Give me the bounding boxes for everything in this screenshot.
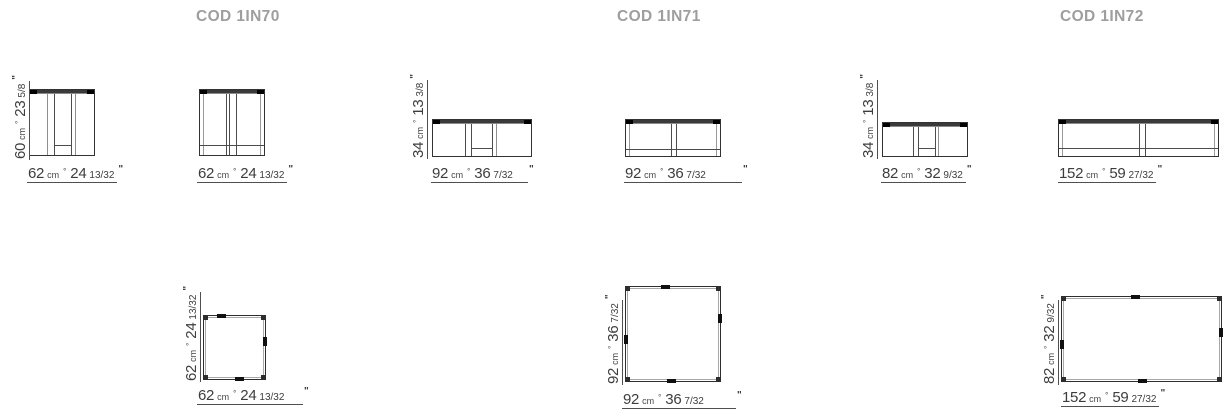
side-view-1in70 bbox=[199, 89, 265, 156]
dimension-cm: 92 bbox=[623, 391, 639, 408]
dimension-cm: 34 bbox=[410, 142, 427, 158]
joint-tick bbox=[1138, 379, 1147, 383]
leg-line bbox=[1145, 124, 1146, 156]
leg-line bbox=[496, 124, 497, 156]
corner-joint bbox=[1217, 377, 1222, 382]
frame-line bbox=[629, 124, 630, 156]
corner-joint bbox=[1061, 377, 1066, 382]
inch-mark: " bbox=[288, 164, 293, 175]
dimension-inches: 24 bbox=[240, 387, 256, 404]
dimension-inches: 32 bbox=[924, 165, 940, 182]
inch-mark: " bbox=[1040, 294, 1051, 299]
dimension-fraction: 5/8 bbox=[17, 84, 28, 98]
dimension-cm: 82 bbox=[1041, 368, 1058, 384]
dimension-unit: cm bbox=[1086, 170, 1098, 180]
stretcher-line bbox=[918, 148, 935, 149]
dimension-separator: ° bbox=[917, 167, 920, 176]
stretcher-line bbox=[1059, 148, 1218, 149]
dimension-unit: cm bbox=[610, 353, 620, 365]
leg-line bbox=[75, 94, 76, 155]
dimension-cm: 62 bbox=[198, 387, 214, 404]
inch-mark: " bbox=[182, 286, 193, 291]
dimension-separator: ° bbox=[1043, 346, 1052, 349]
dimension-separator: ° bbox=[412, 120, 421, 123]
plan-view-1in71 bbox=[625, 286, 721, 382]
tabletop-edge bbox=[200, 90, 264, 94]
depth-dimension-1in71-plan: 92cm°367/32" bbox=[601, 294, 619, 385]
dimension-cm: 62 bbox=[28, 165, 44, 182]
dimension-separator: ° bbox=[467, 167, 470, 176]
dimension-unit: cm bbox=[901, 170, 913, 180]
frame-line bbox=[1214, 124, 1215, 156]
height-dimension-1in70: 60cm°235/8" bbox=[8, 75, 26, 160]
corner-joint bbox=[716, 286, 721, 291]
width-dimension-1in70-plan: 62cm°2413/32" bbox=[197, 383, 309, 401]
dimension-fraction: 9/32 bbox=[943, 170, 962, 181]
stretcher-line bbox=[200, 145, 264, 146]
plan-view-1in70 bbox=[203, 315, 266, 380]
dimension-fraction: 3/8 bbox=[415, 83, 426, 97]
width-dimension-1in70-side: 62cm°2413/32" bbox=[197, 161, 293, 179]
tabletop-edge bbox=[433, 120, 531, 124]
joint-tick bbox=[667, 379, 676, 383]
leg-line bbox=[671, 124, 672, 156]
product-code-1in70: COD 1IN70 bbox=[196, 8, 280, 26]
dimension-inches: 24 bbox=[183, 323, 200, 339]
dimension-cm: 62 bbox=[198, 165, 214, 182]
corner-joint bbox=[203, 375, 208, 380]
dimension-separator: ° bbox=[14, 121, 23, 124]
dimension-fraction: 7/32 bbox=[493, 170, 512, 181]
dimension-separator: ° bbox=[233, 167, 236, 176]
dimension-separator: ° bbox=[63, 167, 66, 176]
dimension-unit: cm bbox=[17, 128, 27, 140]
dimension-cm: 60 bbox=[12, 143, 29, 159]
tabletop-end-cap bbox=[524, 120, 531, 124]
leg-line bbox=[913, 127, 914, 156]
width-dimension-1in72-front: 82cm°329/32" bbox=[881, 161, 972, 179]
front-view-1in71 bbox=[432, 119, 532, 157]
dimension-fraction: 27/32 bbox=[1128, 170, 1153, 181]
technical-drawing-sheet: COD 1IN70 COD 1IN71 COD 1IN72 60cm°235/8… bbox=[0, 0, 1226, 411]
leg-line bbox=[935, 127, 936, 156]
dimension-inches: 24 bbox=[240, 165, 256, 182]
dimension-fraction: 13/32 bbox=[188, 295, 199, 320]
corner-joint bbox=[203, 315, 208, 320]
dimension-separator: ° bbox=[1105, 391, 1108, 400]
dimension-cm: 82 bbox=[882, 165, 898, 182]
height-dimension-1in72: 34cm°133/8" bbox=[856, 74, 874, 159]
front-view-1in70 bbox=[29, 89, 95, 156]
dimension-unit: cm bbox=[644, 170, 656, 180]
joint-tick bbox=[263, 337, 267, 346]
dimension-fraction: 3/8 bbox=[865, 83, 876, 97]
dimension-unit: cm bbox=[865, 127, 875, 139]
inch-mark: " bbox=[1157, 164, 1162, 175]
product-code-1in72: COD 1IN72 bbox=[1060, 8, 1144, 26]
corner-joint bbox=[261, 375, 266, 380]
leg-line bbox=[918, 127, 919, 156]
inch-mark: " bbox=[859, 74, 870, 79]
dimension-cm: 92 bbox=[625, 165, 641, 182]
dimension-fraction: 13/32 bbox=[259, 170, 284, 181]
dimension-inches: 59 bbox=[1112, 389, 1128, 406]
corner-joint bbox=[625, 286, 630, 291]
front-view-1in72 bbox=[882, 122, 968, 157]
stretcher-line bbox=[626, 149, 720, 150]
inch-mark: " bbox=[11, 75, 22, 80]
leg-line bbox=[676, 124, 677, 156]
dimension-cm: 92 bbox=[432, 165, 448, 182]
dimension-separator: ° bbox=[862, 120, 871, 123]
dimension-fraction: 9/32 bbox=[1046, 303, 1057, 322]
tabletop-edge bbox=[626, 120, 720, 124]
dimension-inches: 13 bbox=[860, 100, 877, 116]
dimension-inches: 23 bbox=[12, 101, 29, 117]
dimension-inches: 36 bbox=[605, 326, 622, 342]
dimension-fraction: 7/32 bbox=[684, 396, 703, 407]
joint-tick bbox=[624, 335, 628, 344]
dimension-inches: 13 bbox=[410, 100, 427, 116]
corner-joint bbox=[1061, 296, 1066, 301]
leg-line bbox=[465, 124, 466, 156]
inch-mark: " bbox=[967, 164, 972, 175]
leg-line bbox=[492, 124, 493, 156]
dimension-cm: 62 bbox=[183, 365, 200, 381]
joint-tick bbox=[1219, 328, 1223, 337]
tabletop-inner-edge bbox=[1063, 298, 1220, 380]
tabletop-edge bbox=[883, 123, 967, 127]
joint-tick bbox=[718, 314, 722, 323]
width-dimension-1in71-side: 92cm°367/32" bbox=[624, 161, 748, 179]
stretcher-line bbox=[54, 145, 71, 146]
dimension-separator: ° bbox=[658, 393, 661, 402]
inch-mark: " bbox=[304, 386, 309, 397]
inch-mark: " bbox=[737, 390, 742, 401]
inch-mark: " bbox=[743, 164, 748, 175]
stretcher-line bbox=[471, 148, 492, 149]
depth-dimension-1in72-plan: 82cm°329/32" bbox=[1037, 294, 1055, 385]
width-dimension-1in71-plan: 92cm°367/32" bbox=[622, 387, 742, 405]
side-view-1in71 bbox=[625, 119, 721, 157]
width-dimension-1in71-front: 92cm°367/32" bbox=[431, 161, 534, 179]
tabletop-inner-edge bbox=[627, 288, 719, 380]
inch-mark: " bbox=[1160, 388, 1165, 399]
dimension-unit: cm bbox=[217, 170, 229, 180]
dimension-inches: 59 bbox=[1109, 165, 1125, 182]
leg-line bbox=[938, 127, 939, 156]
joint-tick bbox=[217, 314, 226, 318]
tabletop-end-cap bbox=[960, 123, 967, 127]
depth-dimension-1in70-plan: 62cm°2413/32" bbox=[179, 286, 197, 382]
dimension-unit: cm bbox=[451, 170, 463, 180]
dimension-fraction: 7/32 bbox=[686, 170, 705, 181]
dimension-fraction: 27/32 bbox=[1131, 394, 1156, 405]
width-dimension-1in72-side: 152cm°5927/32" bbox=[1058, 161, 1162, 179]
inch-mark: " bbox=[118, 164, 123, 175]
side-view-1in72 bbox=[1058, 119, 1219, 157]
corner-joint bbox=[625, 377, 630, 382]
dimension-inches: 32 bbox=[1041, 326, 1058, 342]
inch-mark: " bbox=[529, 164, 534, 175]
dimension-separator: ° bbox=[1102, 167, 1105, 176]
height-dimension-1in71: 34cm°133/8" bbox=[406, 74, 424, 159]
dimension-inches: 36 bbox=[474, 165, 490, 182]
inch-mark: " bbox=[409, 74, 420, 79]
width-dimension-1in72-plan: 152cm°5927/32" bbox=[1061, 385, 1165, 403]
dimension-cm: 152 bbox=[1059, 165, 1083, 182]
tabletop-edge bbox=[30, 90, 94, 94]
dimension-cm: 152 bbox=[1062, 389, 1086, 406]
dimension-unit: cm bbox=[217, 392, 229, 402]
dimension-unit: cm bbox=[415, 127, 425, 139]
dimension-separator: ° bbox=[660, 167, 663, 176]
tabletop-end-cap bbox=[30, 90, 37, 94]
dimension-inches: 24 bbox=[70, 165, 86, 182]
joint-tick bbox=[1060, 340, 1064, 349]
dimension-cm: 34 bbox=[860, 142, 877, 158]
tabletop-end-cap bbox=[433, 120, 440, 124]
tabletop-end-cap bbox=[883, 123, 890, 127]
leg-line bbox=[471, 124, 472, 156]
joint-tick bbox=[1131, 295, 1140, 299]
joint-tick bbox=[661, 285, 670, 289]
dimension-cm: 92 bbox=[605, 368, 622, 384]
dimension-separator: ° bbox=[185, 343, 194, 346]
leg-line bbox=[1139, 124, 1140, 156]
dimension-unit: cm bbox=[188, 350, 198, 362]
dimension-separator: ° bbox=[607, 346, 616, 349]
dimension-fraction: 13/32 bbox=[89, 170, 114, 181]
dimension-unit: cm bbox=[1089, 394, 1101, 404]
corner-joint bbox=[1217, 296, 1222, 301]
leg-line bbox=[47, 94, 48, 155]
tabletop-end-cap bbox=[87, 90, 94, 94]
dimension-unit: cm bbox=[1046, 353, 1056, 365]
plan-view-1in72 bbox=[1061, 296, 1222, 382]
dimension-separator: ° bbox=[233, 389, 236, 398]
joint-tick bbox=[235, 377, 244, 381]
width-dimension-1in70-front: 62cm°2413/32" bbox=[27, 161, 123, 179]
corner-joint bbox=[261, 315, 266, 320]
dimension-unit: cm bbox=[642, 396, 654, 406]
dimension-inches: 36 bbox=[667, 165, 683, 182]
frame-line bbox=[1062, 124, 1063, 156]
product-code-1in71: COD 1IN71 bbox=[617, 8, 701, 26]
dimension-inches: 36 bbox=[665, 391, 681, 408]
corner-joint bbox=[716, 377, 721, 382]
dimension-fraction: 7/32 bbox=[610, 303, 621, 322]
inch-mark: " bbox=[604, 294, 615, 299]
dimension-fraction: 13/32 bbox=[259, 392, 284, 403]
tabletop-inner-edge bbox=[205, 317, 264, 378]
frame-line bbox=[716, 124, 717, 156]
leg-line bbox=[71, 94, 72, 155]
dimension-unit: cm bbox=[47, 170, 59, 180]
